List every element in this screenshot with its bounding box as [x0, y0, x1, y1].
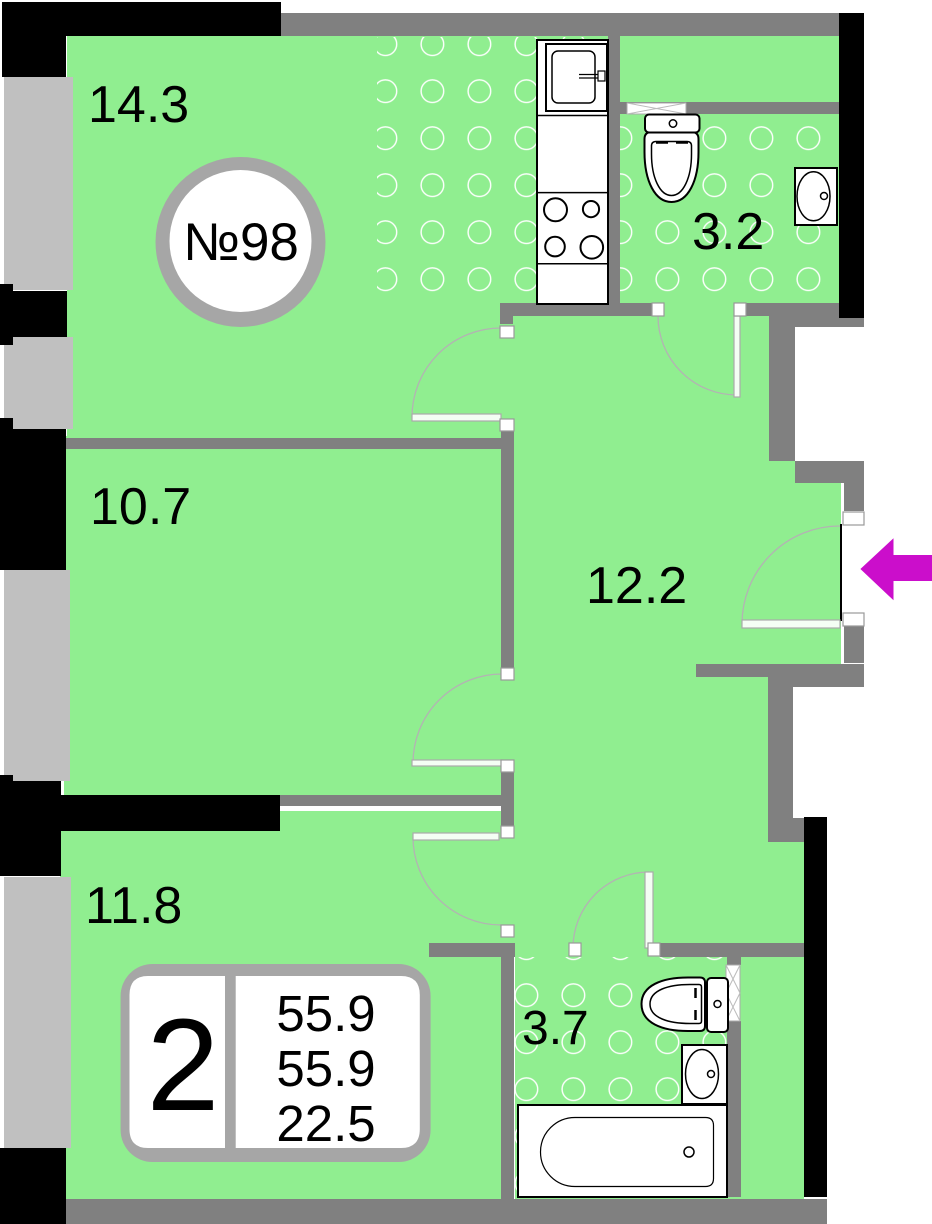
svg-text:55.9: 55.9	[276, 985, 375, 1042]
svg-text:55.9: 55.9	[276, 1040, 375, 1097]
svg-text:10.7: 10.7	[90, 478, 191, 536]
svg-text:22.5: 22.5	[276, 1095, 375, 1152]
svg-text:№98: №98	[183, 213, 299, 272]
svg-text:11.8: 11.8	[85, 877, 182, 935]
svg-text:12.2: 12.2	[586, 557, 687, 615]
svg-text:2: 2	[147, 991, 220, 1138]
svg-text:14.3: 14.3	[88, 76, 189, 134]
svg-text:3.7: 3.7	[522, 1002, 589, 1055]
svg-text:3.2: 3.2	[692, 203, 764, 261]
